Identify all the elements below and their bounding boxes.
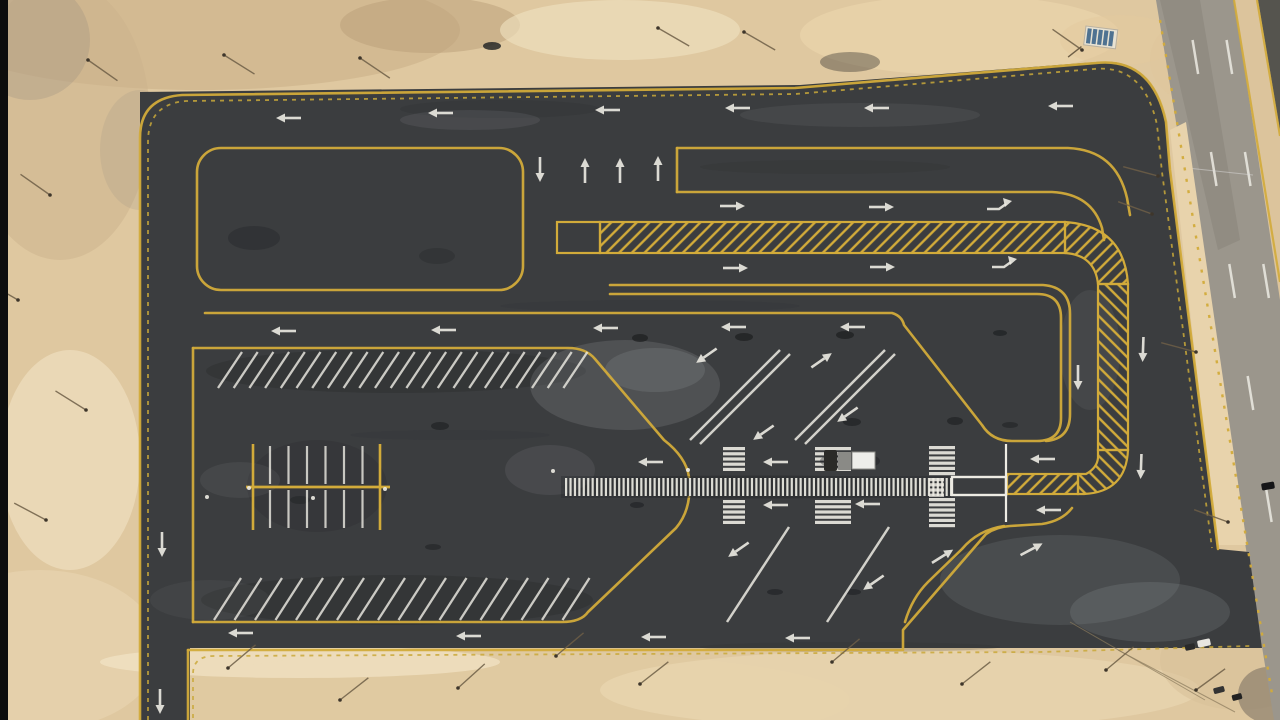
pole-base bbox=[358, 56, 362, 60]
debris-blob bbox=[431, 422, 449, 430]
comb-bar bbox=[667, 478, 669, 496]
crosswalk-bar bbox=[929, 451, 955, 454]
comb-bar bbox=[654, 478, 656, 496]
comb-bar bbox=[702, 478, 704, 496]
debris-blob bbox=[483, 42, 501, 50]
comb-bar bbox=[738, 478, 740, 496]
aerial-photo: Aerial photograph of a newly paved aspha… bbox=[0, 0, 1280, 720]
debris-blob bbox=[993, 330, 1007, 336]
sand-blotch bbox=[500, 0, 740, 60]
crosswalk-bar bbox=[723, 447, 745, 450]
paint-dot bbox=[247, 486, 251, 490]
comb-bar bbox=[769, 478, 771, 496]
comb-bar bbox=[742, 478, 744, 496]
pole-base bbox=[1226, 520, 1230, 524]
comb-bar bbox=[623, 478, 625, 496]
light-streak bbox=[400, 110, 540, 130]
comb-bar bbox=[600, 478, 602, 496]
comb-bar bbox=[817, 478, 819, 496]
crosswalk-bar bbox=[929, 478, 944, 481]
crosswalk-bar bbox=[929, 508, 955, 511]
debris-blob bbox=[836, 331, 854, 339]
pole-base bbox=[222, 53, 226, 57]
truck-body bbox=[838, 452, 851, 470]
crosswalk-bar bbox=[929, 472, 955, 475]
comb-bar bbox=[729, 478, 731, 496]
comb-bar bbox=[831, 478, 833, 496]
letterbox-left-bar bbox=[0, 0, 8, 720]
debris-blob bbox=[947, 417, 963, 425]
crosswalk-bar bbox=[723, 468, 745, 471]
comb-bar bbox=[693, 478, 695, 496]
scene-canvas bbox=[0, 0, 1280, 720]
comb-bar bbox=[645, 478, 647, 496]
comb-bar bbox=[583, 478, 585, 496]
comb-bar bbox=[671, 478, 673, 496]
comb-bar bbox=[879, 478, 881, 496]
hatch-bottom-run bbox=[1007, 474, 1078, 494]
comb-bar bbox=[636, 478, 638, 496]
comb-bar bbox=[861, 478, 863, 496]
comb-bar bbox=[676, 478, 678, 496]
debris-blob bbox=[419, 248, 455, 264]
crosswalk-bar bbox=[929, 494, 944, 497]
comb-bar bbox=[715, 478, 717, 496]
crosswalk-bar bbox=[929, 462, 955, 465]
comb-bar bbox=[627, 478, 629, 496]
comb-bar bbox=[822, 478, 824, 496]
pole-base bbox=[638, 682, 642, 686]
crosswalk-bar bbox=[815, 505, 851, 508]
comb-bar bbox=[857, 478, 859, 496]
crosswalk-bar bbox=[929, 519, 955, 522]
comb-bar bbox=[578, 478, 580, 496]
comb-bar bbox=[764, 478, 766, 496]
comb-bar bbox=[946, 478, 948, 496]
truck-trailer bbox=[852, 452, 875, 469]
debris-blob bbox=[630, 502, 644, 508]
comb-bar bbox=[848, 478, 850, 496]
comb-bar bbox=[888, 478, 890, 496]
comb-bar bbox=[923, 478, 925, 496]
comb-bar bbox=[773, 478, 775, 496]
crosswalk-bar bbox=[929, 483, 944, 486]
comb-bar bbox=[631, 478, 633, 496]
comb-bar bbox=[906, 478, 908, 496]
pole-base bbox=[16, 298, 20, 302]
comb-bar bbox=[720, 478, 722, 496]
crosswalk-bar bbox=[929, 488, 944, 491]
crosswalk-bar bbox=[723, 463, 745, 466]
comb-bar bbox=[649, 478, 651, 496]
pole-base bbox=[1194, 688, 1198, 692]
pole-base bbox=[742, 30, 746, 34]
comb-bar bbox=[839, 478, 841, 496]
dark-streak bbox=[350, 430, 550, 440]
light-streak bbox=[200, 462, 280, 498]
comb-bar bbox=[813, 478, 815, 496]
line-marking-truck bbox=[820, 450, 880, 471]
pole-base bbox=[86, 58, 90, 62]
comb-bar bbox=[901, 478, 903, 496]
paint-dot bbox=[311, 496, 315, 500]
comb-bar bbox=[892, 478, 894, 496]
comb-bar bbox=[565, 478, 567, 496]
crosswalk-bar bbox=[929, 446, 955, 449]
comb-bar bbox=[711, 478, 713, 496]
walkway-comb-strip bbox=[561, 476, 954, 498]
pole-base bbox=[226, 666, 230, 670]
comb-bar bbox=[707, 478, 709, 496]
crosswalk-bar bbox=[723, 510, 745, 513]
paint-dot bbox=[551, 469, 555, 473]
crosswalk-bar bbox=[929, 514, 955, 517]
comb-bar bbox=[919, 478, 921, 496]
debris-blob bbox=[820, 52, 880, 72]
paint-dot bbox=[205, 495, 209, 499]
comb-bar bbox=[915, 478, 917, 496]
comb-bar bbox=[844, 478, 846, 496]
truck-cab bbox=[824, 450, 837, 471]
comb-bar bbox=[698, 478, 700, 496]
comb-bar bbox=[751, 478, 753, 496]
comb-bar bbox=[755, 478, 757, 496]
comb-bar bbox=[866, 478, 868, 496]
comb-bar bbox=[587, 478, 589, 496]
comb-bar bbox=[777, 478, 779, 496]
crosswalk-bar bbox=[815, 510, 851, 513]
comb-bar bbox=[609, 478, 611, 496]
crosswalk-bar bbox=[723, 521, 745, 524]
paint-dot bbox=[383, 487, 387, 491]
pole-base bbox=[338, 698, 342, 702]
comb-bar bbox=[733, 478, 735, 496]
pole-base bbox=[830, 660, 834, 664]
comb-bar bbox=[782, 478, 784, 496]
comb-bar bbox=[662, 478, 664, 496]
truck-group bbox=[820, 450, 880, 471]
pole-base bbox=[1150, 212, 1154, 216]
crosswalk-bar bbox=[929, 524, 955, 527]
comb-bar bbox=[835, 478, 837, 496]
crosswalk-bar bbox=[723, 457, 745, 460]
comb-bar bbox=[760, 478, 762, 496]
crosswalk-bar bbox=[815, 516, 851, 519]
comb-bar bbox=[605, 478, 607, 496]
comb-bar bbox=[724, 478, 726, 496]
comb-bar bbox=[875, 478, 877, 496]
crosswalk-bar bbox=[815, 500, 851, 503]
comb-bar bbox=[640, 478, 642, 496]
pole-base bbox=[456, 686, 460, 690]
debris-blob bbox=[228, 226, 280, 250]
comb-bar bbox=[795, 478, 797, 496]
pole-base bbox=[656, 26, 660, 30]
comb-bar bbox=[786, 478, 788, 496]
comb-bar bbox=[746, 478, 748, 496]
dark-streak bbox=[500, 300, 800, 312]
dark-streak bbox=[700, 160, 950, 174]
hatch-horizontal-run bbox=[600, 222, 1065, 253]
pole-base bbox=[84, 408, 88, 412]
comb-bar bbox=[791, 478, 793, 496]
light-streak bbox=[1070, 582, 1230, 642]
crosswalk-bar bbox=[723, 452, 745, 455]
pole-base bbox=[554, 654, 558, 658]
comb-bar bbox=[618, 478, 620, 496]
sand-blotch bbox=[0, 350, 140, 570]
comb-bar bbox=[680, 478, 682, 496]
pole-base bbox=[1080, 48, 1084, 52]
pole-base bbox=[48, 193, 52, 197]
comb-bar bbox=[884, 478, 886, 496]
crosswalk-bar bbox=[723, 516, 745, 519]
comb-bar bbox=[574, 478, 576, 496]
comb-bar bbox=[804, 478, 806, 496]
crosswalk-bar bbox=[929, 467, 955, 470]
pole-base bbox=[960, 682, 964, 686]
crosswalk-bar bbox=[815, 447, 851, 450]
comb-bar bbox=[808, 478, 810, 496]
comb-bar bbox=[592, 478, 594, 496]
pole-base bbox=[44, 518, 48, 522]
hatch-vertical-run bbox=[1098, 284, 1128, 450]
comb-bar bbox=[897, 478, 899, 496]
comb-bar bbox=[684, 478, 686, 496]
crosswalk-bar bbox=[929, 498, 955, 501]
paint-dot bbox=[686, 468, 690, 472]
crosswalk-bar bbox=[929, 503, 955, 506]
comb-bar bbox=[596, 478, 598, 496]
debris-blob bbox=[425, 544, 441, 550]
comb-bar bbox=[614, 478, 616, 496]
light-streak bbox=[740, 103, 980, 127]
debris-blob bbox=[1002, 422, 1018, 428]
comb-bar bbox=[569, 478, 571, 496]
debris-blob bbox=[632, 334, 648, 342]
comb-bar bbox=[800, 478, 802, 496]
comb-bar bbox=[689, 478, 691, 496]
pole-base bbox=[1104, 668, 1108, 672]
comb-bar bbox=[910, 478, 912, 496]
comb-bar bbox=[826, 478, 828, 496]
comb-bar bbox=[853, 478, 855, 496]
crosswalk-bar bbox=[723, 500, 745, 503]
debris-blob bbox=[735, 333, 753, 341]
comb-bar bbox=[870, 478, 872, 496]
light-streak bbox=[605, 348, 705, 392]
light-streak bbox=[150, 580, 270, 620]
pole-base bbox=[1156, 174, 1160, 178]
pole-base bbox=[1194, 350, 1198, 354]
comb-bar bbox=[658, 478, 660, 496]
debris-blob bbox=[767, 589, 783, 595]
crosswalk-bar bbox=[723, 505, 745, 508]
crosswalk-bar bbox=[929, 456, 955, 459]
crosswalk-bar bbox=[815, 521, 851, 524]
